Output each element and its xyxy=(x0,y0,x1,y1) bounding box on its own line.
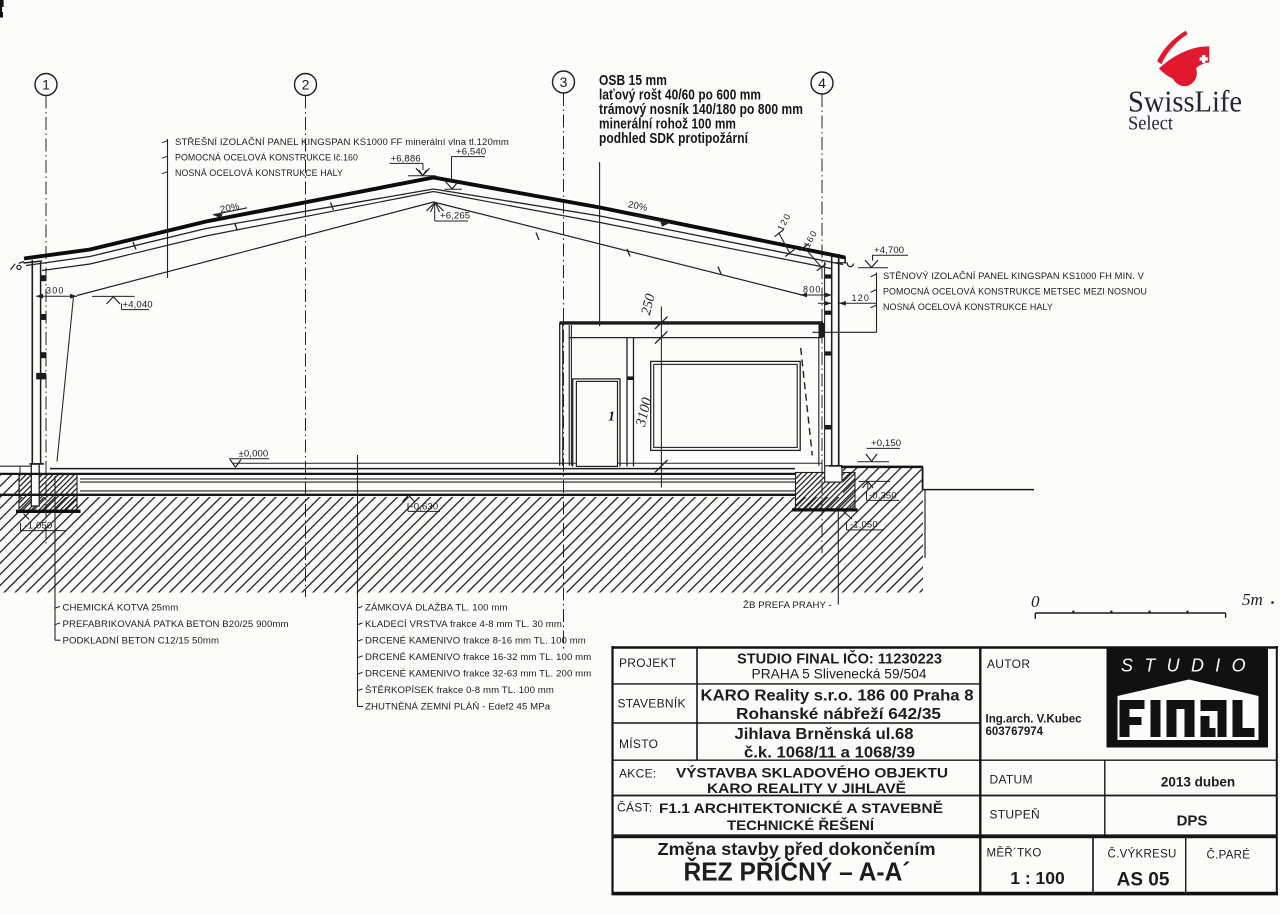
svg-text:AUTOR: AUTOR xyxy=(987,657,1030,671)
svg-text:DATUM: DATUM xyxy=(990,773,1033,787)
svg-text:CHEMICKÁ KOTVA 25mm: CHEMICKÁ KOTVA 25mm xyxy=(63,603,179,614)
svg-text:ŽB PREFA PRAHY -: ŽB PREFA PRAHY - xyxy=(743,600,832,611)
svg-text:KLADECÍ VRSTVA frakce 4-8 mm T: KLADECÍ VRSTVA frakce 4-8 mm TL. 30 mm xyxy=(365,619,562,630)
svg-text:PROJEKT: PROJEKT xyxy=(619,656,677,670)
svg-text:NOSNÁ OCELOVÁ KONSTRUKCE HALY: NOSNÁ OCELOVÁ KONSTRUKCE HALY xyxy=(883,302,1053,313)
svg-text:KARO Reality s.r.o. 186 00 Pra: KARO Reality s.r.o. 186 00 Praha 8 xyxy=(701,688,974,705)
svg-text:300: 300 xyxy=(46,286,65,296)
svg-text:F1.1 ARCHITEKTONICKÉ A STAVEBN: F1.1 ARCHITEKTONICKÉ A STAVEBNĚ xyxy=(659,799,943,816)
svg-text:ČÁST:: ČÁST: xyxy=(617,800,653,815)
svg-text:DRCENÉ KAMENIVO frakce 8-16 mm: DRCENÉ KAMENIVO frakce 8-16 mm TL. 100 m… xyxy=(365,636,586,647)
svg-text:3: 3 xyxy=(560,74,568,90)
svg-text:ZHUTNĚNÁ ZEMNÍ PLÁŇ - Edef2 45: ZHUTNĚNÁ ZEMNÍ PLÁŇ - Edef2 45 MPa xyxy=(365,702,551,713)
svg-text:5m: 5m xyxy=(1242,590,1263,609)
svg-text:1 : 100: 1 : 100 xyxy=(1010,868,1065,888)
svg-text:-1,050: -1,050 xyxy=(25,520,53,531)
svg-text:NOSNÁ OCELOVÁ KONSTRUKCE HALY: NOSNÁ OCELOVÁ KONSTRUKCE HALY xyxy=(175,168,343,179)
svg-text:±0,000: ±0,000 xyxy=(239,448,269,459)
svg-text:Ing.arch. V.Kubec: Ing.arch. V.Kubec xyxy=(986,714,1083,726)
svg-text:MĚŘ´TKO: MĚŘ´TKO xyxy=(987,847,1042,860)
svg-text:120: 120 xyxy=(852,293,871,303)
svg-text:Rohanské nábřeží 642/35: Rohanské nábřeží 642/35 xyxy=(736,706,941,723)
svg-text:POMOCNÁ OCELOVÁ KONSTRUKCE MET: POMOCNÁ OCELOVÁ KONSTRUKCE METSEC MEZI N… xyxy=(883,287,1147,298)
svg-text:800: 800 xyxy=(803,285,822,295)
svg-text:+0,150: +0,150 xyxy=(871,438,901,449)
svg-text:STŘEŠNÍ IZOLAČNÍ PANEL KINGSPA: STŘEŠNÍ IZOLAČNÍ PANEL KINGSPAN KS1000 F… xyxy=(175,137,509,148)
svg-text:-1,050: -1,050 xyxy=(850,520,878,531)
svg-text:STAVEBNÍK: STAVEBNÍK xyxy=(618,696,686,711)
svg-text:PRAHA 5 Slivenecká 59/504: PRAHA 5 Slivenecká 59/504 xyxy=(752,667,927,682)
svg-text:STĚNOVÝ IZOLAČNÍ PANEL KINGSPA: STĚNOVÝ IZOLAČNÍ PANEL KINGSPAN KS1000 F… xyxy=(883,271,1144,282)
svg-text:č.k. 1068/11 a 1068/39: č.k. 1068/11 a 1068/39 xyxy=(744,745,915,762)
svg-text:AKCE:: AKCE: xyxy=(619,767,657,781)
svg-text:Jihlava Brněnská ul.68: Jihlava Brněnská ul.68 xyxy=(735,726,914,743)
svg-text:0: 0 xyxy=(1031,592,1040,611)
svg-text:4: 4 xyxy=(818,75,826,91)
svg-text:AS 05: AS 05 xyxy=(1117,870,1170,891)
svg-text:PREFABRIKOVANÁ PATKA BETON B20: PREFABRIKOVANÁ PATKA BETON B20/25 900mm xyxy=(63,619,289,630)
svg-text:+6,265: +6,265 xyxy=(440,211,470,222)
svg-text:KARO REALITY V JIHLAVĚ: KARO REALITY V JIHLAVĚ xyxy=(707,779,906,796)
svg-text:ŘEZ PŘÍČNÝ – A-A´: ŘEZ PŘÍČNÝ – A-A´ xyxy=(684,857,911,887)
svg-text:STUDIO: STUDIO xyxy=(1121,656,1257,676)
svg-text:2013 duben: 2013 duben xyxy=(1161,775,1235,790)
svg-text:POMOCNÁ OCELOVÁ KONSTRUKCE Ič.: POMOCNÁ OCELOVÁ KONSTRUKCE Ič.160 xyxy=(175,153,358,164)
svg-text:603767974: 603767974 xyxy=(986,726,1044,738)
svg-text:TECHNICKÉ ŘEŠENÍ: TECHNICKÉ ŘEŠENÍ xyxy=(727,816,875,833)
svg-text:DRCENÉ KAMENIVO frakce 16-32 m: DRCENÉ KAMENIVO frakce 16-32 mm TL. 100 … xyxy=(365,652,591,663)
svg-text:1: 1 xyxy=(42,77,50,93)
svg-text:+6,540: +6,540 xyxy=(456,146,486,157)
svg-text:STUPEŇ: STUPEŇ xyxy=(990,807,1040,822)
svg-text:ZÁMKOVÁ DLAŽBA TL. 100 mm: ZÁMKOVÁ DLAŽBA TL. 100 mm xyxy=(365,603,508,614)
svg-text:DPS: DPS xyxy=(1177,813,1208,830)
svg-text:ŠTĚRKOPÍSEK frakce 0-8 mm TL.: ŠTĚRKOPÍSEK frakce 0-8 mm TL. 100 mm xyxy=(365,685,554,696)
svg-text:-0,630: -0,630 xyxy=(411,501,439,512)
svg-text:2: 2 xyxy=(302,77,310,93)
svg-text:+6,886: +6,886 xyxy=(391,153,421,164)
svg-text:+4,700: +4,700 xyxy=(874,245,904,256)
svg-text:Č.VÝKRESU: Č.VÝKRESU xyxy=(1108,848,1177,861)
svg-text:-0,350: -0,350 xyxy=(869,490,897,501)
svg-text:+4,040: +4,040 xyxy=(123,300,153,311)
svg-text:Select: Select xyxy=(1128,114,1174,135)
svg-text:podhled SDK protipožární: podhled SDK protipožární xyxy=(599,130,749,147)
svg-text:STUDIO FINAL IČO: 11230223: STUDIO FINAL IČO: 11230223 xyxy=(737,650,942,668)
svg-text:VÝSTAVBA SKLADOVÉHO OBJEKTU: VÝSTAVBA SKLADOVÉHO OBJEKTU xyxy=(676,764,948,781)
svg-text:Č.PARÉ: Č.PARÉ xyxy=(1207,849,1251,862)
svg-text:PODKLADNÍ BETON C12/15 50mm: PODKLADNÍ BETON C12/15 50mm xyxy=(63,636,220,647)
svg-text:1: 1 xyxy=(608,410,615,425)
svg-text:DRCENÉ KAMENIVO frakce 32-63 m: DRCENÉ KAMENIVO frakce 32-63 mm TL. 200 … xyxy=(365,669,591,680)
svg-text:MÍSTO: MÍSTO xyxy=(619,736,658,751)
